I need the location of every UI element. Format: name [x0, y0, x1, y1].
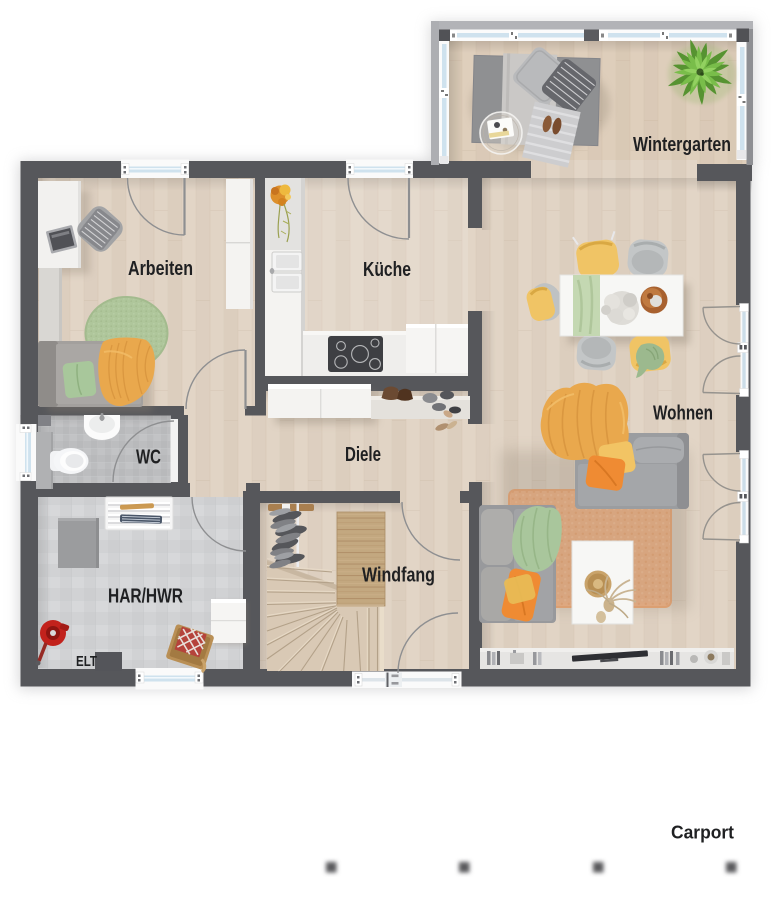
svg-text:WC: WC	[136, 447, 161, 469]
svg-text:ELT: ELT	[76, 653, 97, 670]
svg-text:Küche: Küche	[363, 259, 411, 281]
svg-text:Carport: Carport	[671, 823, 734, 843]
svg-text:Wintergarten: Wintergarten	[633, 134, 731, 156]
svg-text:Diele: Diele	[345, 444, 381, 466]
svg-text:Windfang: Windfang	[362, 565, 435, 587]
svg-text:Wohnen: Wohnen	[653, 403, 713, 425]
svg-text:HAR/HWR: HAR/HWR	[108, 586, 183, 608]
svg-text:Arbeiten: Arbeiten	[128, 258, 193, 280]
